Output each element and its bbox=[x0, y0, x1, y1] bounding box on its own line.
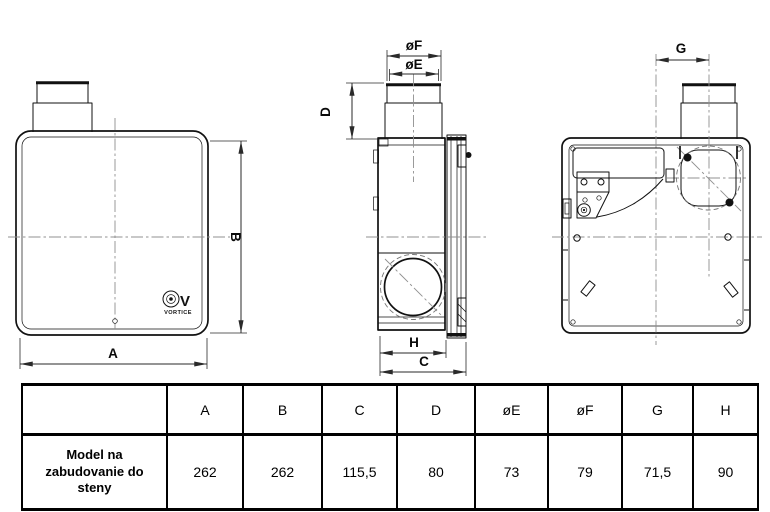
fan-dimension-drawing-page: V VORTICE B A bbox=[0, 0, 770, 512]
duct-spigot bbox=[33, 103, 92, 132]
technical-drawing: V VORTICE B A bbox=[0, 0, 770, 383]
header-a: A bbox=[167, 385, 243, 435]
value-g: 71,5 bbox=[622, 435, 693, 510]
fixing-hole bbox=[574, 235, 580, 241]
screw-head bbox=[726, 199, 734, 207]
vortice-logo: V VORTICE bbox=[163, 291, 192, 316]
wiring-recess bbox=[573, 148, 664, 178]
scroll-curve bbox=[597, 179, 663, 217]
header-of: øF bbox=[548, 385, 622, 435]
front-view: V VORTICE B A bbox=[8, 82, 247, 369]
header-d: D bbox=[397, 385, 475, 435]
value-d: 80 bbox=[397, 435, 475, 510]
dim-label-oe: øE bbox=[405, 57, 422, 72]
screw-head bbox=[684, 154, 692, 162]
screw-head bbox=[466, 152, 472, 158]
dim-label-b: B bbox=[228, 232, 243, 242]
value-b: 262 bbox=[243, 435, 322, 510]
keyhole-slot bbox=[724, 282, 738, 297]
value-oe: 73 bbox=[475, 435, 548, 510]
value-a: 262 bbox=[167, 435, 243, 510]
value-h: 90 bbox=[693, 435, 758, 510]
dim-label-of: øF bbox=[406, 38, 423, 53]
corner-screw bbox=[737, 320, 741, 324]
table-data-row: Model na zabudovanie do steny 262 262 11… bbox=[22, 435, 758, 510]
logo-brand-text: VORTICE bbox=[164, 310, 192, 316]
front-panel-edge bbox=[447, 135, 472, 338]
dim-label-c: C bbox=[419, 354, 429, 369]
header-c: C bbox=[322, 385, 397, 435]
dimensions-table: A B C D øE øF G H Model na zabudovanie d… bbox=[21, 383, 759, 511]
header-g: G bbox=[622, 385, 693, 435]
header-h: H bbox=[693, 385, 758, 435]
corner-screw bbox=[571, 320, 575, 324]
panel-latch bbox=[458, 298, 466, 326]
cable-entry bbox=[563, 199, 571, 218]
side-view: øF øE D H C bbox=[318, 38, 486, 376]
header-b: B bbox=[243, 385, 322, 435]
dim-label-d: D bbox=[318, 107, 333, 117]
model-label: Model na zabudovanie do steny bbox=[22, 435, 167, 510]
dim-label-a: A bbox=[108, 346, 118, 361]
table-header-row: A B C D øE øF G H bbox=[22, 385, 758, 435]
dim-label-h: H bbox=[409, 335, 419, 350]
logo-v-glyph: V bbox=[180, 293, 190, 310]
table-corner-cell bbox=[22, 385, 167, 435]
rear-view: G bbox=[552, 41, 762, 345]
keyhole-slot bbox=[581, 281, 595, 296]
dim-label-g: G bbox=[676, 41, 687, 56]
value-of: 79 bbox=[548, 435, 622, 510]
header-oe: øE bbox=[475, 385, 548, 435]
panel-latch bbox=[458, 145, 466, 167]
motor-bracket bbox=[577, 172, 663, 218]
value-c: 115,5 bbox=[322, 435, 397, 510]
slot bbox=[666, 169, 674, 182]
